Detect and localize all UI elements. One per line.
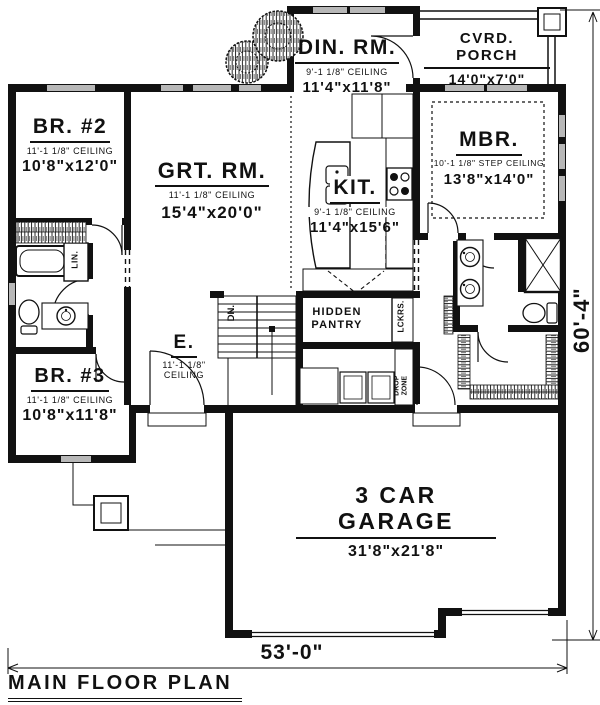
mbr-door-opening <box>428 232 458 241</box>
master-bath-fixtures <box>457 238 561 323</box>
mbr-ceiling: 10'-1 1/8" STEP CEILING <box>428 159 550 169</box>
window-grt-top-1 <box>158 84 186 92</box>
din-rm-ceiling: 9'-1 1/8" CEILING <box>284 67 410 77</box>
window-grt-top-2 <box>190 84 234 92</box>
grt-rm-size: 15'4"x20'0" <box>142 203 282 223</box>
mbr-size: 13'8"x14'0" <box>428 171 550 188</box>
br3-ceiling: 11'-1 1/8" CEILING <box>10 395 130 405</box>
room-label-grt-rm: GRT. RM. 11'-1 1/8" CEILING 15'4"x20'0" <box>142 158 282 222</box>
hall-closet-rod <box>444 296 453 334</box>
doors <box>53 36 508 414</box>
room-label-cvrd-porch: CVRD. PORCH 14'0"x7'0" <box>424 30 550 87</box>
br2-door-opening <box>92 217 122 226</box>
bathtub-icon <box>16 246 68 276</box>
entry-ceiling-2: CEILING <box>152 370 216 380</box>
page-title: MAIN FLOOR PLAN <box>8 672 242 702</box>
master-sink-1-icon <box>461 248 480 267</box>
kit-size: 11'4"x15'6" <box>298 219 412 236</box>
room-label-kit: KIT. 9'-1 1/8" CEILING 11'4"x15'6" <box>298 176 412 237</box>
room-label-br3: BR. #3 11'-1 1/8" CEILING 10'8"x11'8" <box>10 365 130 426</box>
linen-label: LIN. <box>70 240 79 280</box>
bath-vanity-sink-icon <box>42 303 88 329</box>
stairs-dn-label: DN. <box>227 293 237 333</box>
mbr-name: MBR. <box>456 128 522 156</box>
front-porch-column-icon <box>94 496 128 530</box>
kit-name: KIT. <box>330 176 379 204</box>
room-label-din-rm: DIN. RM. 9'-1 1/8" CEILING 11'4"x11'8" <box>284 36 410 97</box>
shower-icon <box>525 238 561 292</box>
garage-entry-stoop <box>413 413 460 426</box>
cvrd-porch-size: 14'0"x7'0" <box>424 71 550 87</box>
overall-width-dimension: 53'-0" <box>232 641 352 665</box>
window-bath-left <box>8 280 16 308</box>
grt-rm-ceiling: 11'-1 1/8" CEILING <box>142 190 282 200</box>
br3-name: BR. #3 <box>31 365 108 392</box>
window-grt-top-3 <box>236 84 264 92</box>
window-mbr-right <box>558 112 566 204</box>
room-label-hidden-pantry: HIDDEN PANTRY <box>299 306 375 331</box>
br2-ceiling: 11'-1 1/8" CEILING <box>10 146 130 156</box>
master-toilet-icon <box>523 303 557 323</box>
master-sink-2-icon <box>461 280 480 299</box>
room-label-garage: 3 CAR GARAGE 31'8"x21'8" <box>296 482 496 561</box>
room-label-entry: E. 11'-1 1/8" CEILING <box>152 332 216 381</box>
window-br3-bottom <box>58 455 94 463</box>
drop-zone-line1: DROP <box>393 364 401 408</box>
lockers-label: LCKRS. <box>398 296 407 336</box>
room-label-mbr: MBR. 10'-1 1/8" STEP CEILING 13'8"x14'0" <box>428 128 550 188</box>
overall-height-dimension: 60'-4" <box>570 265 594 375</box>
entry-name: E. <box>171 332 198 358</box>
cvrd-porch-name: CVRD. PORCH <box>424 30 550 69</box>
kitchen-cabinet-row <box>303 269 413 291</box>
kit-ceiling: 9'-1 1/8" CEILING <box>298 207 412 217</box>
din-porch-door-opening <box>412 36 421 78</box>
wic-door-opening <box>478 324 508 333</box>
garage-size: 31'8"x21'8" <box>296 543 496 561</box>
room-label-br2: BR. #2 11'-1 1/8" CEILING 10'8"x12'0" <box>10 115 130 177</box>
br3-size: 10'8"x11'8" <box>10 407 130 425</box>
floor-plan-drawing <box>0 0 600 705</box>
drop-zone-line2: ZONE <box>401 364 409 408</box>
garage-name: 3 CAR GARAGE <box>296 482 496 539</box>
window-din-top <box>310 6 388 14</box>
laundry-counter <box>300 368 338 404</box>
hidden-pantry-line1: HIDDEN <box>299 306 375 319</box>
wic-rod-left <box>458 335 470 389</box>
wic-rod-right <box>546 335 558 387</box>
din-rm-size: 11'4"x11'8" <box>284 79 410 96</box>
br3-door-opening <box>96 346 124 355</box>
br2-size: 10'8"x12'0" <box>10 158 130 176</box>
entry-ceiling-1: 11'-1 1/8" <box>152 360 216 370</box>
grt-rm-name: GRT. RM. <box>155 158 270 187</box>
garage-doors <box>252 608 548 638</box>
toilet-icon <box>19 300 39 334</box>
window-br2-top <box>44 84 98 92</box>
floor-plan-canvas: BR. #2 11'-1 1/8" CEILING 10'8"x12'0" GR… <box>0 0 600 705</box>
washer-icon <box>340 372 366 403</box>
entry-stoop <box>148 413 206 426</box>
hidden-pantry-line2: PANTRY <box>299 319 375 332</box>
dryer-icon <box>368 372 394 403</box>
din-rm-name: DIN. RM. <box>295 36 399 64</box>
drop-zone-label: DROP ZONE <box>393 364 408 408</box>
br2-name: BR. #2 <box>30 115 110 143</box>
